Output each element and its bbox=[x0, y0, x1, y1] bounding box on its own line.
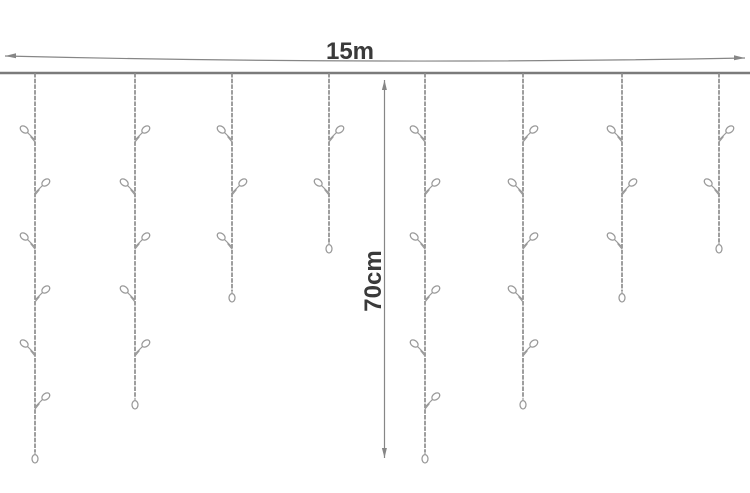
icicle-lights-diagram: 15m70cm bbox=[0, 0, 750, 493]
bulb bbox=[719, 124, 735, 142]
light-strand bbox=[703, 73, 735, 253]
bulb bbox=[523, 124, 539, 142]
bulb bbox=[35, 177, 51, 195]
arrow-left-icon bbox=[5, 53, 16, 58]
light-strand bbox=[507, 73, 539, 409]
bulb bbox=[409, 338, 425, 356]
arrow-up-icon bbox=[382, 80, 387, 90]
width-dimension: 15m bbox=[5, 38, 745, 65]
terminal-bulb bbox=[520, 398, 526, 409]
bulb bbox=[606, 231, 622, 249]
drop-dimension: 70cm bbox=[360, 80, 387, 458]
arrow-down-icon bbox=[382, 448, 387, 458]
bulb bbox=[523, 231, 539, 249]
bulb bbox=[409, 231, 425, 249]
bulb bbox=[135, 231, 151, 249]
bulb bbox=[425, 284, 441, 302]
terminal-bulb bbox=[132, 398, 138, 409]
light-strand bbox=[313, 73, 345, 253]
light-strand bbox=[606, 73, 638, 302]
bulb bbox=[425, 177, 441, 195]
bulb bbox=[35, 284, 51, 302]
bulb bbox=[19, 338, 35, 356]
bulb bbox=[523, 338, 539, 356]
bulb bbox=[119, 177, 135, 195]
terminal-bulb bbox=[716, 242, 722, 253]
bulb bbox=[329, 124, 345, 142]
diagram-canvas: 15m70cm bbox=[0, 0, 750, 493]
width-dimension-label: 15m bbox=[326, 38, 374, 65]
bulb bbox=[507, 284, 523, 302]
bulb bbox=[135, 338, 151, 356]
light-strand bbox=[119, 73, 151, 409]
light-strand bbox=[409, 73, 441, 463]
bulb bbox=[622, 177, 638, 195]
light-strand bbox=[216, 73, 248, 302]
light-strand bbox=[19, 73, 51, 463]
bulb bbox=[135, 124, 151, 142]
terminal-bulb bbox=[32, 452, 38, 463]
terminal-bulb bbox=[619, 291, 625, 302]
terminal-bulb bbox=[229, 291, 235, 302]
terminal-bulb bbox=[326, 242, 332, 253]
width-dimension-line bbox=[5, 56, 745, 61]
bulb bbox=[119, 284, 135, 302]
bulb bbox=[216, 231, 232, 249]
terminal-bulb bbox=[422, 452, 428, 463]
bulb bbox=[19, 124, 35, 142]
bulb bbox=[232, 177, 248, 195]
bulb bbox=[606, 124, 622, 142]
bulb bbox=[35, 391, 51, 409]
bulb bbox=[703, 177, 719, 195]
bulb bbox=[313, 177, 329, 195]
bulb bbox=[409, 124, 425, 142]
bulb bbox=[19, 231, 35, 249]
bulb bbox=[507, 177, 523, 195]
bulb bbox=[216, 124, 232, 142]
arrow-right-icon bbox=[734, 55, 745, 60]
drop-dimension-label: 70cm bbox=[360, 250, 387, 311]
bulb bbox=[425, 391, 441, 409]
